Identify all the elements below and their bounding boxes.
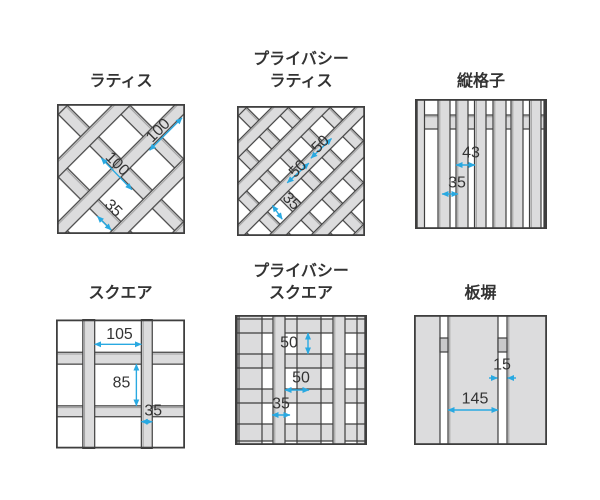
lattice-drawing: 100 100 35 bbox=[57, 103, 185, 235]
panel-title: スクエア bbox=[88, 283, 152, 305]
panel-privacy-square: プライバシー スクエア bbox=[235, 243, 367, 445]
svg-text:85: 85 bbox=[113, 375, 131, 392]
svg-text:35: 35 bbox=[272, 396, 290, 413]
svg-text:50: 50 bbox=[292, 370, 310, 387]
panel-title: ラティス bbox=[89, 71, 152, 93]
panel-lattice: ラティス 100 100 35 bbox=[57, 31, 185, 235]
svg-text:43: 43 bbox=[462, 145, 480, 162]
panel-title: 板塀 bbox=[464, 283, 496, 305]
dimension-35: 35 bbox=[141, 402, 162, 421]
svg-text:35: 35 bbox=[448, 175, 466, 192]
panel-title: プライバシー bbox=[253, 261, 349, 283]
dimension-35: 35 bbox=[272, 396, 290, 416]
privacy-square-drawing: 50 50 35 bbox=[235, 315, 367, 445]
panel-vertical-slat-title-block: 縦格子 bbox=[415, 31, 547, 99]
svg-text:35: 35 bbox=[144, 402, 162, 419]
panel-square-title-block: スクエア bbox=[56, 243, 185, 319]
svg-text:145: 145 bbox=[462, 391, 489, 408]
panel-square: スクエア 105 85 bbox=[56, 243, 185, 449]
panel-privacy-square-title-block: プライバシー スクエア bbox=[235, 243, 367, 315]
panel-lattice-title-block: ラティス bbox=[57, 31, 185, 103]
vertical-slat-drawing: 43 35 bbox=[415, 99, 547, 229]
fence-types-diagram: ラティス 100 100 35 プライバシー ラティス bbox=[0, 0, 600, 500]
svg-text:50: 50 bbox=[280, 335, 298, 352]
panel-board-fence: 板塀 15 145 bbox=[414, 243, 547, 445]
panel-title-line2: スクエア bbox=[269, 283, 333, 305]
board-fence-drawing: 15 145 bbox=[414, 315, 547, 445]
boards bbox=[414, 315, 547, 445]
svg-text:15: 15 bbox=[493, 357, 511, 374]
square-drawing: 105 85 35 bbox=[56, 319, 185, 449]
svg-text:105: 105 bbox=[106, 326, 133, 343]
panel-privacy-lattice: プライバシー ラティス 50 50 35 bbox=[237, 31, 365, 237]
panel-title: プライバシー bbox=[253, 49, 349, 71]
panel-title-line2: ラティス bbox=[269, 71, 332, 93]
panel-privacy-lattice-title-block: プライバシー ラティス bbox=[237, 31, 365, 105]
panel-vertical-slat: 縦格子 bbox=[415, 31, 547, 229]
privacy-lattice-drawing: 50 50 35 bbox=[237, 105, 365, 237]
panel-title: 縦格子 bbox=[457, 71, 505, 93]
panel-board-fence-title-block: 板塀 bbox=[414, 243, 547, 315]
